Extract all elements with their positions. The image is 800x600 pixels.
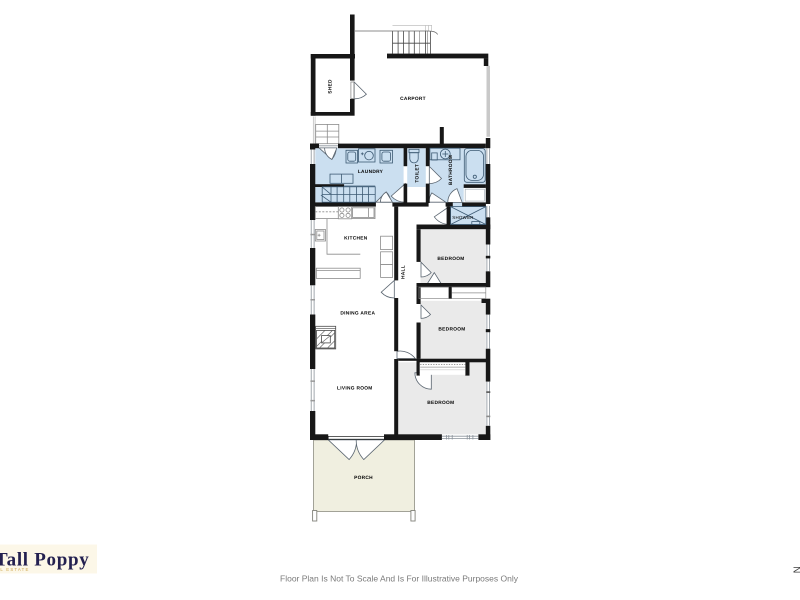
svg-text:BATHROOM: BATHROOM [448,155,454,185]
svg-text:CARPORT: CARPORT [400,96,426,102]
svg-text:REAL ESTATE: REAL ESTATE [0,567,30,572]
svg-text:Floor Plan Is Not To Scale And: Floor Plan Is Not To Scale And Is For Il… [280,573,519,583]
svg-text:SHED: SHED [328,79,334,94]
svg-text:N: N [791,566,800,573]
svg-text:SHOWER: SHOWER [452,215,474,220]
svg-text:TOILET: TOILET [415,164,421,183]
svg-text:LAUNDRY: LAUNDRY [358,169,384,175]
svg-text:KITCHEN: KITCHEN [344,236,368,242]
svg-text:HALL: HALL [401,265,407,279]
svg-text:BEDROOM: BEDROOM [427,400,454,406]
svg-text:PORCH: PORCH [354,475,373,481]
svg-text:BEDROOM: BEDROOM [437,256,464,262]
svg-text:LIVING ROOM: LIVING ROOM [337,385,373,391]
svg-text:DINING AREA: DINING AREA [340,311,375,317]
svg-text:BEDROOM: BEDROOM [438,326,465,332]
